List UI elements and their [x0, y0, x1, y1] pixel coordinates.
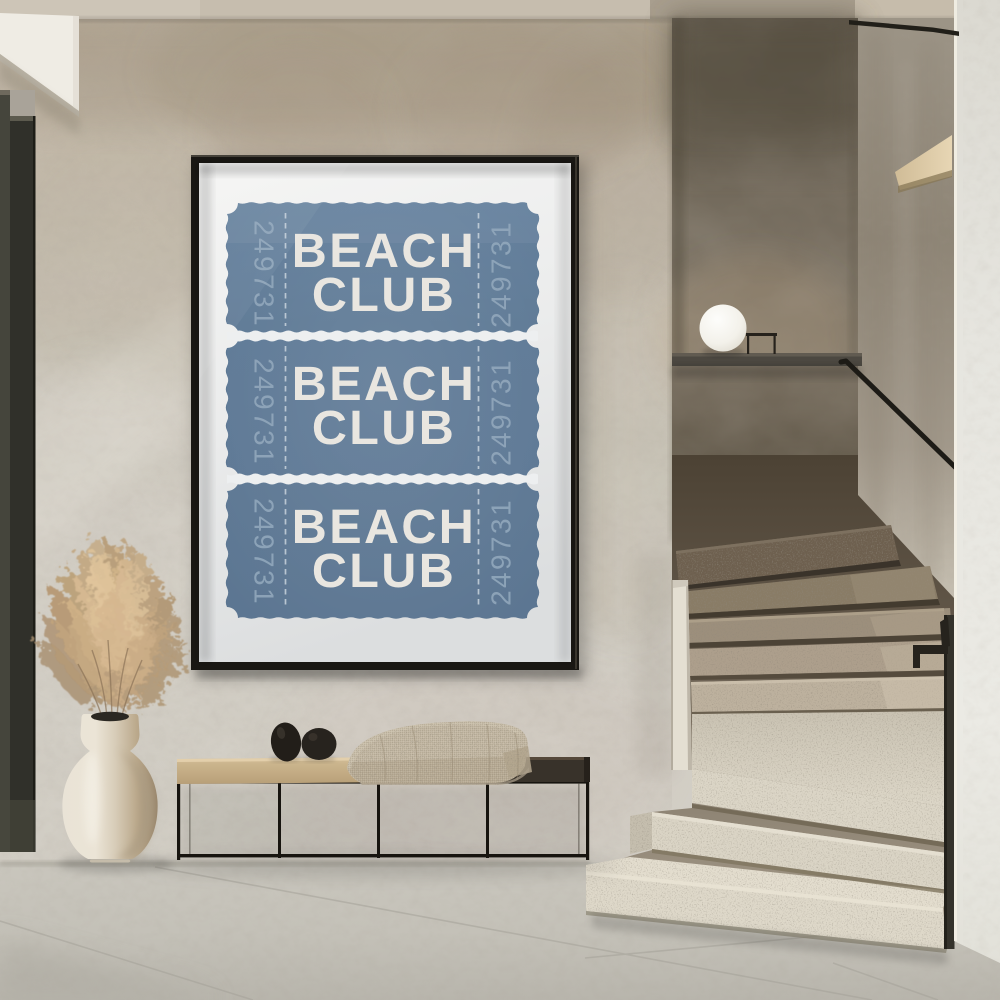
svg-text:249731: 249731	[249, 498, 280, 606]
svg-text:249731: 249731	[486, 220, 517, 328]
svg-text:CLUB: CLUB	[312, 544, 456, 598]
svg-text:249731: 249731	[486, 358, 517, 466]
svg-text:CLUB: CLUB	[312, 401, 456, 455]
svg-text:249731: 249731	[486, 498, 517, 606]
svg-text:CLUB: CLUB	[312, 268, 456, 322]
svg-text:249731: 249731	[249, 358, 280, 466]
